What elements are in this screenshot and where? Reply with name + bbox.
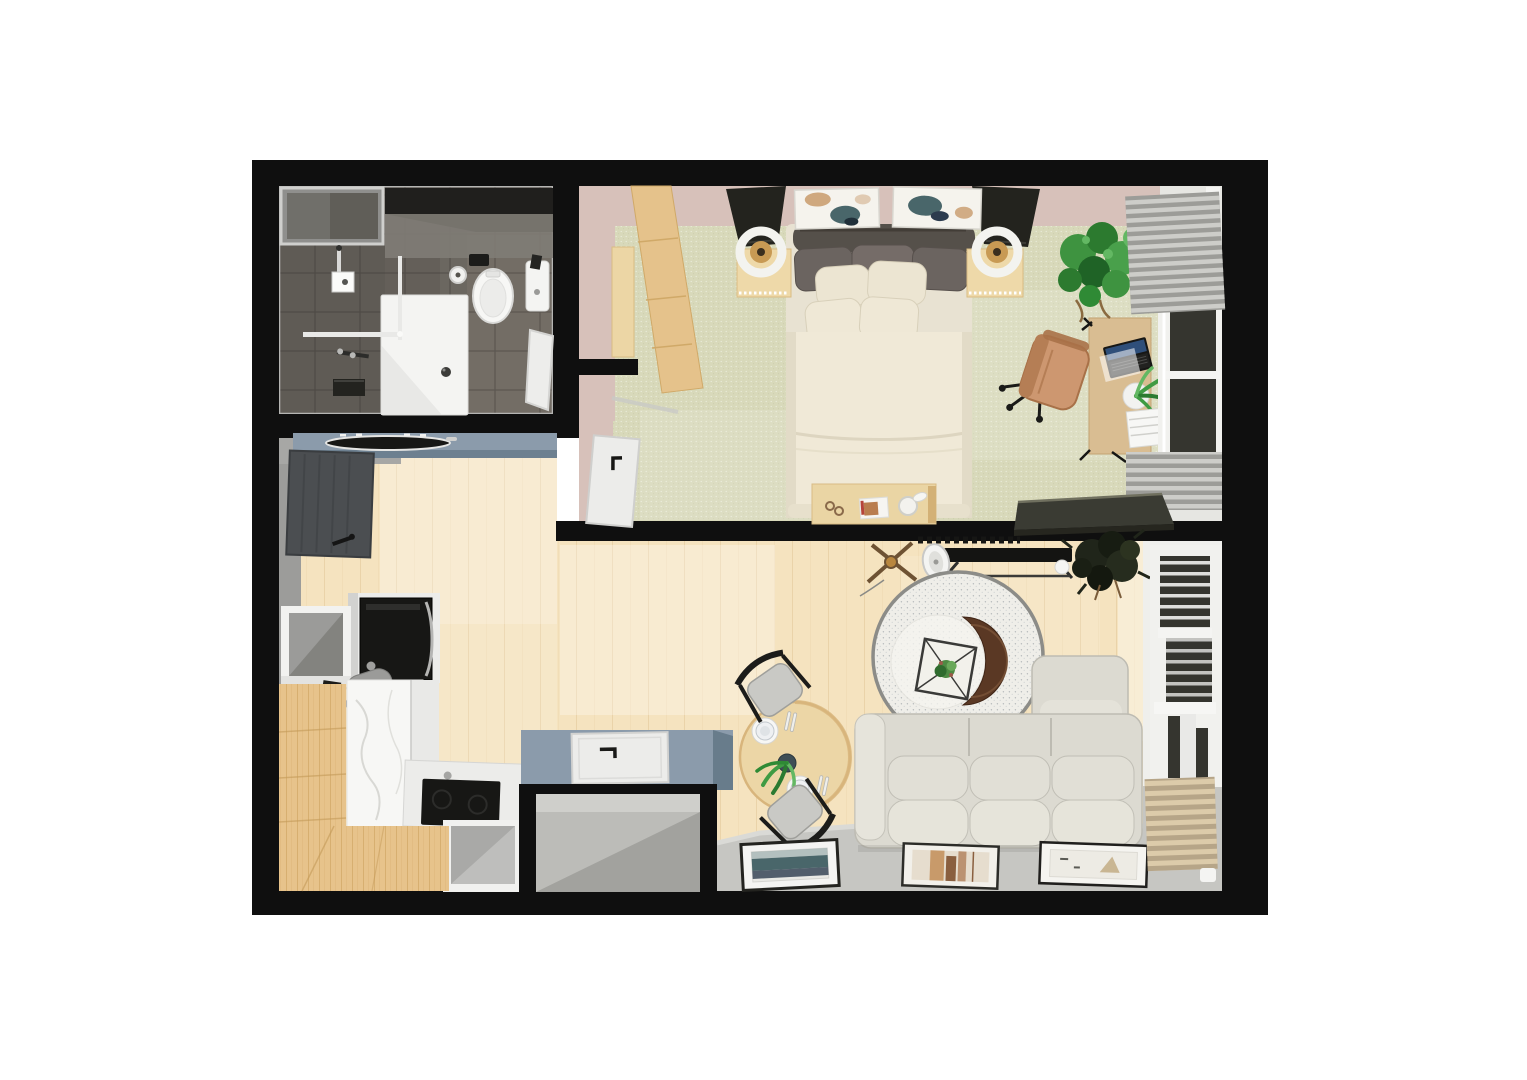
hand-sink xyxy=(526,254,549,311)
corner-shelf xyxy=(443,820,523,892)
framed-art-teal xyxy=(741,840,839,891)
oak-counter-bottom xyxy=(279,826,449,891)
wall-art-right xyxy=(892,187,981,229)
wall-bottom xyxy=(252,891,1268,915)
wall-bedroom-stub xyxy=(556,359,638,375)
living-window-stack xyxy=(1150,545,1222,787)
flush-plate xyxy=(469,254,489,266)
wall-niche xyxy=(281,188,383,244)
double-bed xyxy=(786,224,975,518)
bathroom-concrete-band xyxy=(385,214,553,258)
open-cube-shelf xyxy=(281,606,351,684)
side-console xyxy=(1014,494,1174,536)
trough-basin xyxy=(326,436,450,450)
floor-plan-image xyxy=(0,0,1527,1080)
wall-top xyxy=(252,160,1268,186)
tall-cabinet xyxy=(348,593,440,683)
magazine xyxy=(859,497,888,519)
sofa-arm-left xyxy=(855,714,885,840)
tan-radiator xyxy=(1145,777,1218,871)
bathroom-door xyxy=(526,330,553,410)
decor-ball xyxy=(1055,560,1069,574)
storage-roof-side xyxy=(713,730,733,790)
foot-bench xyxy=(812,484,936,524)
shower-glass-horizontal xyxy=(303,332,400,337)
corner-cap-bottom-right xyxy=(1200,868,1216,882)
radiator-upper xyxy=(1125,192,1225,315)
lower-counter xyxy=(403,760,527,830)
storage-door xyxy=(572,732,669,784)
wall-bath-bedroom xyxy=(553,160,579,438)
shower-drain xyxy=(441,367,451,377)
wall-left xyxy=(252,160,279,915)
wall-right xyxy=(1222,160,1268,915)
framed-art-tan xyxy=(902,843,998,888)
bedroom-door xyxy=(586,435,639,527)
toilet-paper-holder xyxy=(450,267,466,283)
framed-art-pale xyxy=(1039,842,1147,887)
storage-closet xyxy=(519,730,733,892)
wall-art-left xyxy=(795,188,880,229)
glass-tray-plant xyxy=(916,639,976,699)
shower-glass-vertical xyxy=(398,256,402,340)
oven-knob xyxy=(367,662,376,671)
floor-plan-svg xyxy=(0,0,1527,1080)
dinner-plate xyxy=(752,718,778,744)
basin-faucet xyxy=(446,437,457,441)
entry-door xyxy=(286,451,374,558)
